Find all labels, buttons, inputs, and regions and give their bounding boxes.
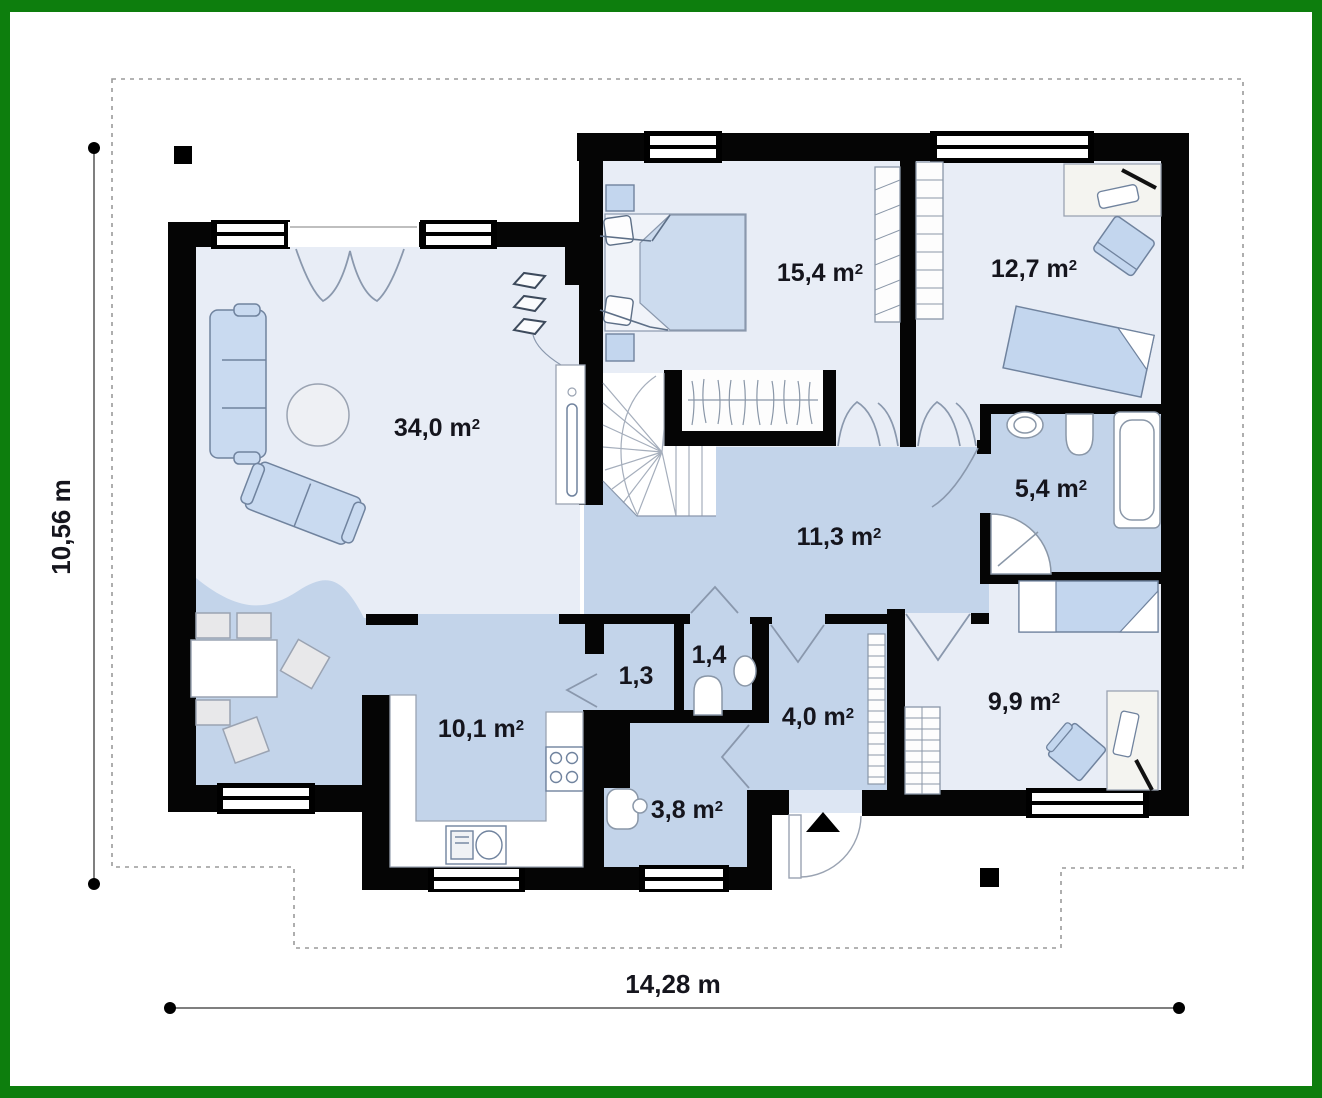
svg-text:14,28 m: 14,28 m xyxy=(625,969,720,999)
svg-text:15,4 m2: 15,4 m2 xyxy=(777,259,863,287)
svg-text:5,4 m2: 5,4 m2 xyxy=(1015,475,1087,503)
svg-text:12,7 m2: 12,7 m2 xyxy=(991,255,1077,283)
svg-text:3,8 m2: 3,8 m2 xyxy=(651,796,723,824)
svg-text:1,4: 1,4 xyxy=(692,641,727,669)
svg-text:11,3 m2: 11,3 m2 xyxy=(797,523,882,551)
svg-text:10,56 m: 10,56 m xyxy=(46,479,76,574)
svg-text:4,0 m2: 4,0 m2 xyxy=(782,703,854,731)
svg-text:1,3: 1,3 xyxy=(619,662,654,690)
svg-text:34,0 m2: 34,0 m2 xyxy=(394,414,480,442)
svg-text:9,9 m2: 9,9 m2 xyxy=(988,688,1060,716)
svg-text:10,1 m2: 10,1 m2 xyxy=(438,715,524,743)
